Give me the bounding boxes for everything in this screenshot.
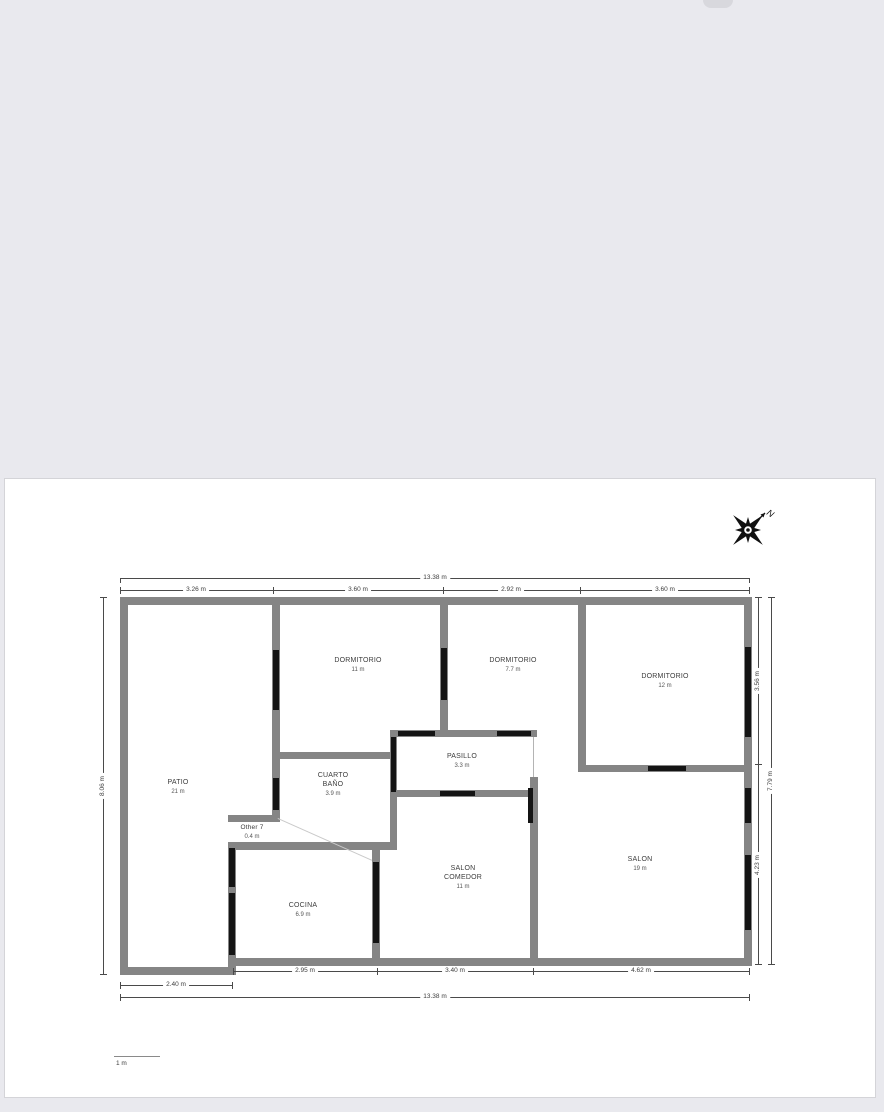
wall: [120, 597, 752, 605]
dimension-tick: [533, 968, 534, 975]
dimension-label-left-height: 8.06 m: [99, 773, 107, 799]
wall: [120, 597, 128, 975]
dimension-label-bottom-seg1: 2.95 m: [292, 967, 318, 975]
wall: [578, 597, 586, 772]
room-label-cocina: COCINA 6.9 m: [253, 901, 353, 919]
room-name: PASILLO: [412, 752, 512, 761]
door-opening: [440, 791, 475, 796]
dimension-tick: [100, 597, 107, 598]
room-area: 3.9 m: [309, 790, 357, 798]
room-area: 21 m: [128, 788, 228, 796]
room-name: SALON: [590, 855, 690, 864]
dimension-label-bottom-seg2: 3.40 m: [442, 967, 468, 975]
room-label-salon-comedor: SALON COMEDOR 11 m: [436, 864, 490, 891]
dimension-tick: [580, 587, 581, 594]
dimension-tick: [755, 597, 762, 598]
room-name: PATIO: [128, 778, 228, 787]
room-label-dormitorio-2: DORMITORIO 7.7 m: [463, 656, 563, 674]
window-opening: [229, 893, 235, 955]
room-area: 11 m: [436, 883, 490, 891]
dimension-tick: [768, 597, 775, 598]
dimension-tick: [749, 587, 750, 594]
window-opening: [745, 788, 751, 823]
dimension-tick: [443, 587, 444, 594]
dimension-tick: [749, 968, 750, 975]
room-label-dormitorio-1: DORMITORIO 11 m: [308, 656, 408, 674]
room-area: 19 m: [590, 865, 690, 873]
dimension-label-patio-width: 2.40 m: [163, 981, 189, 989]
room-area: 7.7 m: [463, 666, 563, 674]
dimension-tick: [273, 587, 274, 594]
room-name: Other 7: [227, 823, 277, 832]
dimension-label-top-seg1: 3.26 m: [183, 586, 209, 594]
dimension-tick: [377, 968, 378, 975]
scroll-blob: [703, 0, 733, 8]
dimension-label-top-total: 13.38 m: [420, 574, 450, 582]
dimension-tick: [768, 964, 775, 965]
screen: { "compass": { "north_label": "N" }, "sc…: [0, 0, 884, 1112]
room-area: 6.9 m: [253, 911, 353, 919]
room-area: 11 m: [308, 666, 408, 674]
room-label-cuarto-bano: CUARTO BAÑO 3.9 m: [309, 771, 357, 798]
door-opening: [648, 766, 686, 771]
room-label-salon: SALON 19 m: [590, 855, 690, 873]
north-label: N: [765, 507, 776, 519]
dimension-tick: [749, 578, 750, 583]
dimension-tick: [233, 968, 234, 975]
dimension-label-top-seg2: 3.60 m: [345, 586, 371, 594]
dimension-tick: [120, 982, 121, 989]
room-name: CUARTO BAÑO: [309, 771, 357, 789]
dimension-tick: [749, 994, 750, 1001]
dimension-tick: [755, 964, 762, 965]
dimension-label-top-seg4: 3.60 m: [652, 586, 678, 594]
door-opening: [497, 731, 531, 736]
door-opening: [391, 737, 396, 792]
dimension-label-right-total: 7.79 m: [767, 768, 775, 794]
room-name: COCINA: [253, 901, 353, 910]
room-label-dormitorio-3: DORMITORIO 12 m: [615, 672, 715, 690]
room-label-patio: PATIO 21 m: [128, 778, 228, 796]
wall: [120, 967, 236, 975]
room-name: DORMITORIO: [463, 656, 563, 665]
window-opening: [745, 647, 751, 737]
open-boundary-line: [533, 737, 534, 777]
room-area: 12 m: [615, 682, 715, 690]
room-name: DORMITORIO: [615, 672, 715, 681]
dimension-tick: [120, 994, 121, 1001]
scale-bar-label: 1 m: [116, 1060, 127, 1067]
scale-bar: [114, 1056, 160, 1057]
door-opening: [229, 848, 235, 887]
door-opening: [373, 862, 379, 943]
dimension-tick: [120, 587, 121, 594]
dimension-tick: [100, 974, 107, 975]
dimension-label-top-seg3: 2.92 m: [498, 586, 524, 594]
room-label-pasillo: PASILLO 3.3 m: [412, 752, 512, 770]
room-area: 0.4 m: [227, 833, 277, 841]
window-opening: [745, 855, 751, 930]
room-area: 3.3 m: [412, 762, 512, 770]
wall: [228, 842, 397, 850]
window-opening: [273, 778, 279, 810]
dimension-tick: [232, 982, 233, 989]
dimension-tick: [120, 578, 121, 583]
door-opening: [398, 731, 435, 736]
dimension-label-bottom-seg3: 4.62 m: [628, 967, 654, 975]
dimension-label-right-lower: 4.23 m: [754, 852, 762, 878]
room-name: SALON COMEDOR: [436, 864, 490, 882]
dimension-label-bottom-total: 13.38 m: [420, 993, 450, 1001]
wall: [272, 752, 397, 759]
compass-icon: N: [724, 502, 776, 552]
wall: [228, 815, 278, 822]
dimension-label-right-upper: 3.56 m: [754, 668, 762, 694]
window-opening: [273, 650, 279, 710]
room-name: DORMITORIO: [308, 656, 408, 665]
wall: [228, 958, 752, 966]
door-opening: [528, 788, 533, 823]
door-opening: [441, 648, 447, 700]
room-label-other-7: Other 7 0.4 m: [227, 823, 277, 841]
